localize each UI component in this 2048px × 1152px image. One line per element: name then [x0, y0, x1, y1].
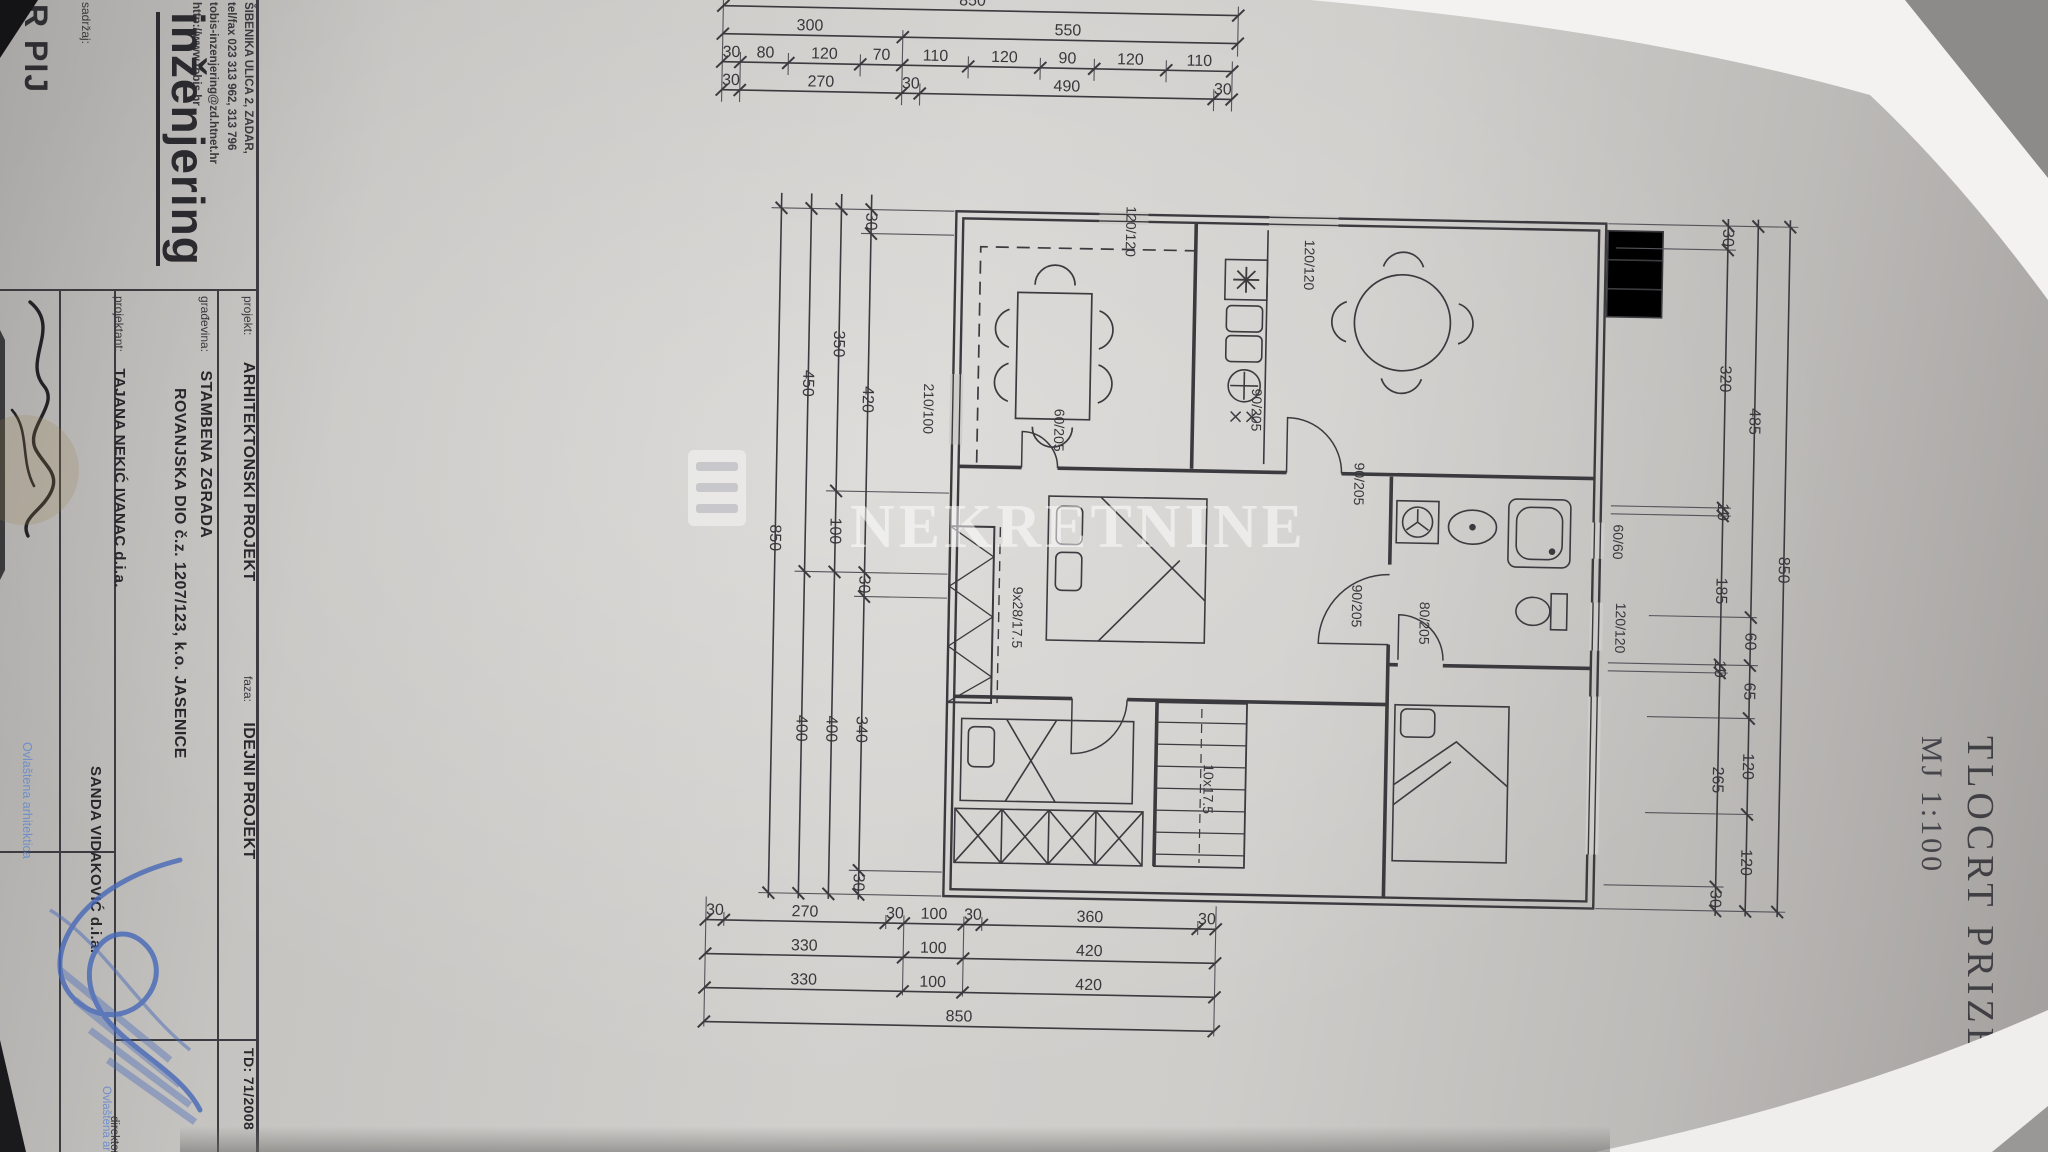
- dark-edge: [0, 0, 38, 58]
- photo-of-floor-plan: 8503005503080120701101209012011030270304…: [0, 0, 2048, 1152]
- bottom-shadow: [180, 1126, 1610, 1152]
- photo-artifacts: [0, 0, 2048, 1152]
- paper-fold-bottom: [1595, 1010, 2048, 1152]
- dark-edge: [0, 1040, 26, 1152]
- paper-stain: [0, 415, 79, 525]
- paper-fold-highlight: [1310, 0, 2048, 300]
